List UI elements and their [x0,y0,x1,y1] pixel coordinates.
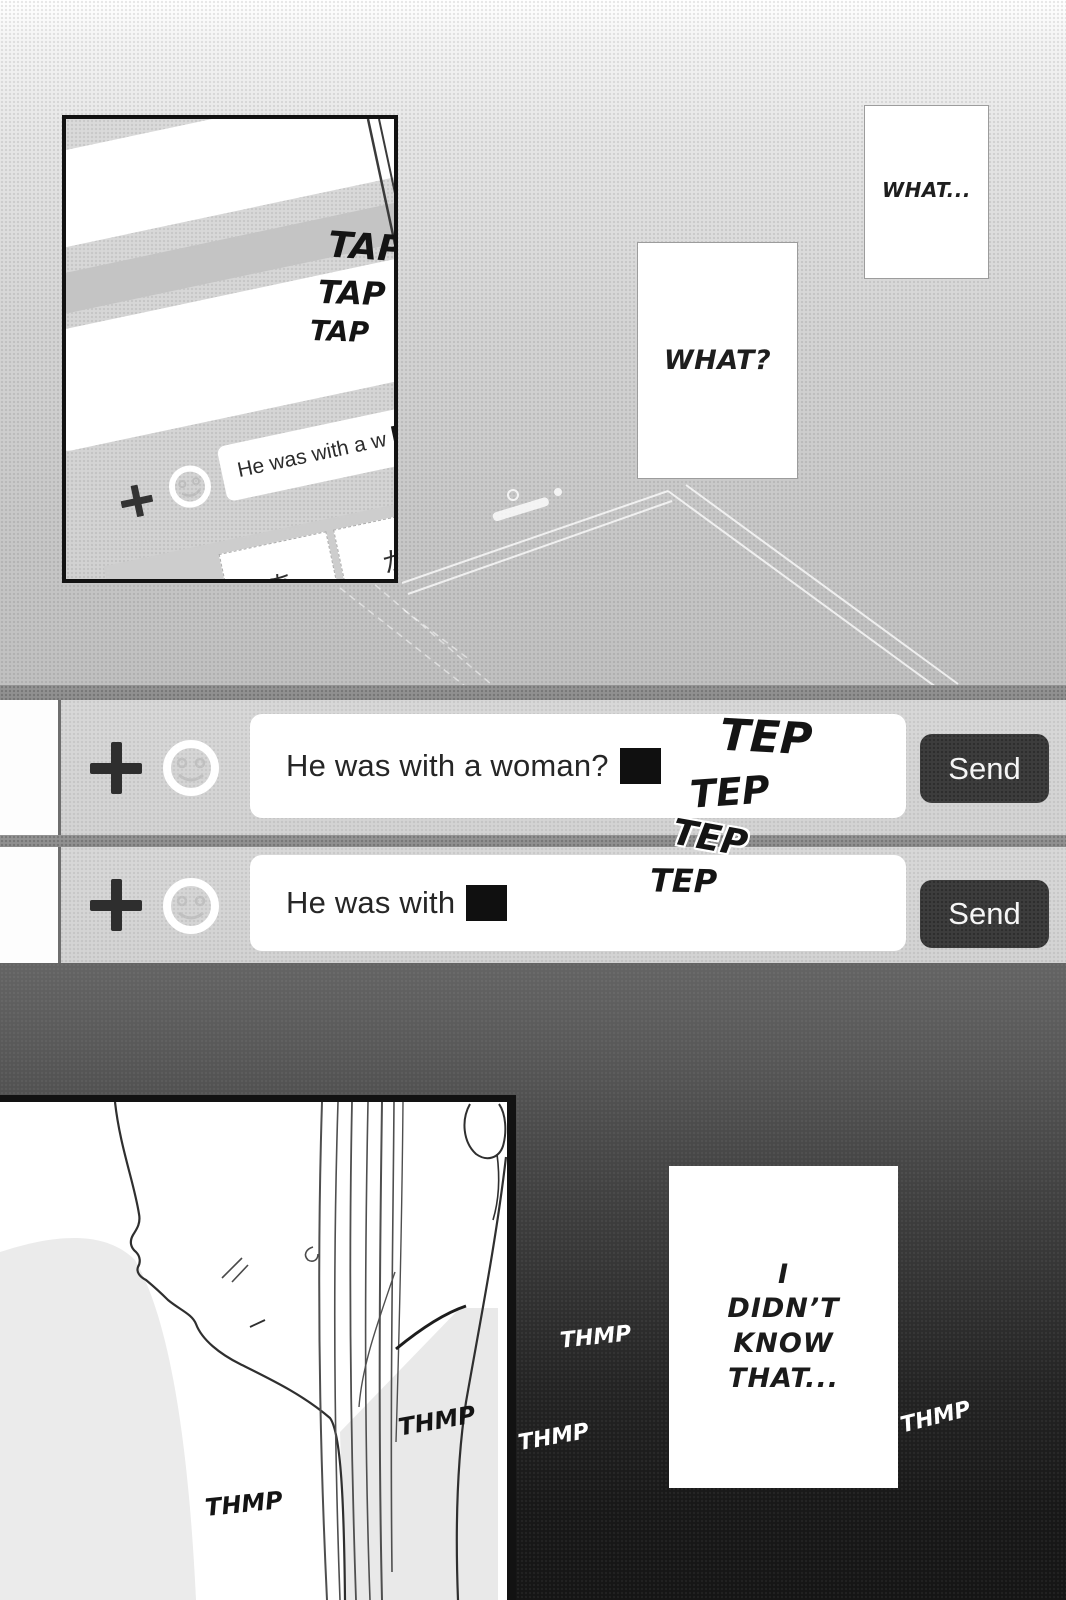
panel-edge-line [58,847,61,963]
chat-bar-2: He was with Send [0,847,1066,963]
woman-profile-drawing [0,1102,507,1600]
sfx-tap: TAP [327,224,398,270]
manga-page: He was with a w あ か さ は → TAP [0,0,1066,1600]
smiley-icon[interactable] [160,875,222,937]
panel-woman-profile: THMP THMP [0,1095,516,1600]
send-button[interactable]: Send [920,734,1049,803]
sfx-tep: TEP [689,767,772,816]
sfx-tep: TEP [650,861,718,900]
phone-edge-lines [66,119,394,579]
monologue-line: THAT... [728,1362,839,1397]
monologue-line: DIDN’T [727,1292,839,1327]
plus-icon[interactable] [90,742,142,794]
caption-monologue: I DIDN’T KNOW THAT... [669,1166,898,1488]
text-cursor [466,885,507,921]
caption-what-ellipsis: WHAT... [864,105,989,279]
panel-edge-line [58,700,61,835]
plus-icon[interactable] [90,879,142,931]
caption-what-question: WHAT? [637,242,798,479]
message-input[interactable]: He was with [250,855,906,951]
panel-phone-screen: He was with a w あ か さ は → TAP [62,115,398,583]
chat-bar-1: He was with a woman? Send [0,700,1066,835]
page-margin [0,700,58,835]
message-input-text: He was with [250,885,455,921]
send-button[interactable]: Send [920,880,1049,948]
bottom-dark-background: THMP THMP I DIDN’T KNOW THAT... THMP THM… [0,963,1066,1600]
monologue-line: I [778,1258,789,1293]
sfx-tep: TEP [719,710,814,766]
message-input-text: He was with a woman? [250,748,609,784]
chat-top-strip [0,685,1066,700]
chat-divider-strip [0,835,1066,847]
caption-text: WHAT? [664,345,771,376]
page-margin [0,847,58,963]
sfx-thmp: THMP [898,1397,973,1439]
top-gradient-background: He was with a w あ か さ は → TAP [0,0,1066,685]
sfx-thmp: THMP [559,1321,633,1353]
caption-text: WHAT... [882,178,971,202]
sfx-tap: TAP [309,314,369,349]
smiley-icon[interactable] [160,737,222,799]
sfx-tap: TAP [317,273,386,313]
text-cursor [620,748,661,784]
sfx-thmp: THMP [516,1419,591,1456]
monologue-line: KNOW [733,1327,833,1362]
